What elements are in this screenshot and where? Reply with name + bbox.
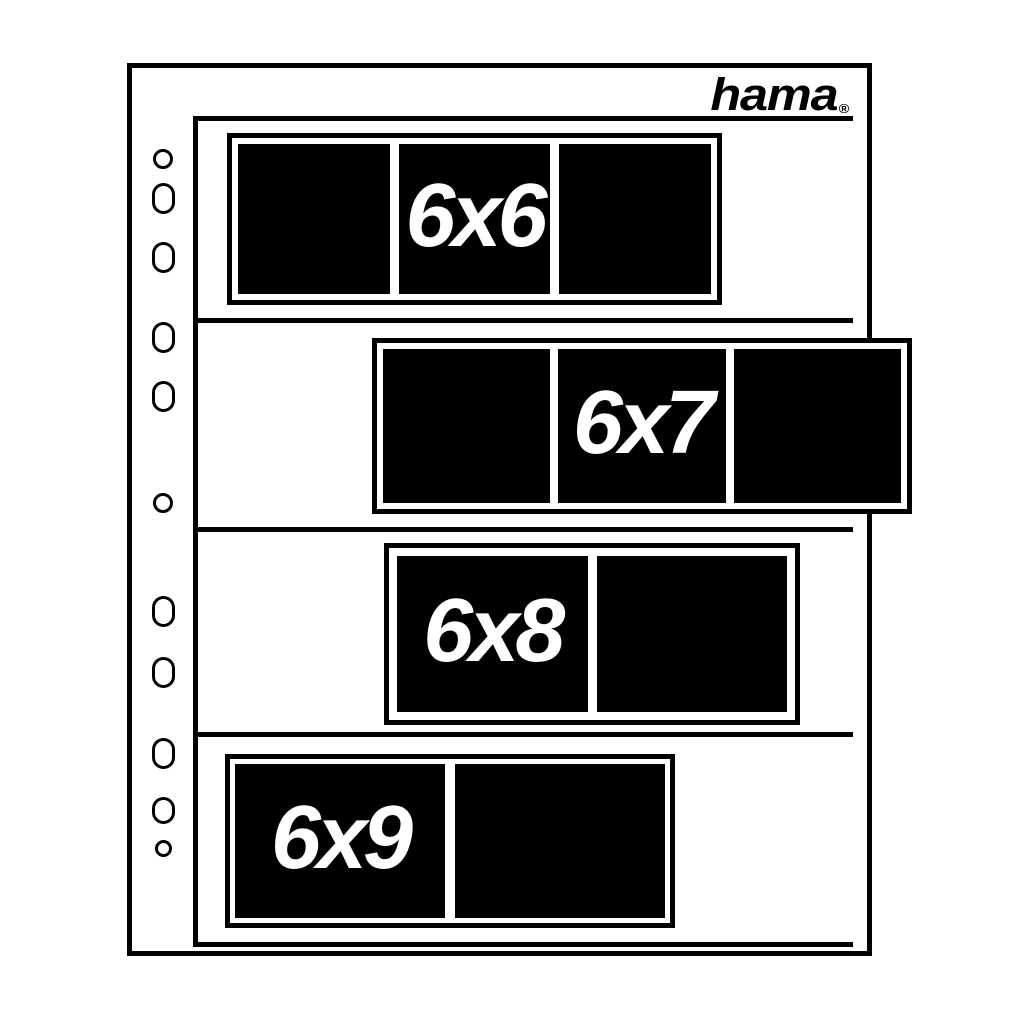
pocket-divider-1 bbox=[193, 318, 853, 323]
hama-logo-text: hama bbox=[710, 69, 837, 120]
film-frame bbox=[734, 349, 901, 503]
registered-trademark-icon: ® bbox=[838, 101, 848, 116]
pocket-divider-3 bbox=[193, 732, 853, 737]
punch-hole-oblong bbox=[152, 183, 175, 214]
film-frame bbox=[383, 349, 550, 503]
format-label-6x9: 6x9 bbox=[271, 793, 409, 883]
film-frame: 6x7 bbox=[558, 349, 725, 503]
film-frame: 6x6 bbox=[399, 144, 551, 294]
punch-hole-oblong bbox=[152, 596, 175, 627]
film-strip-6x6: 6x6 bbox=[227, 133, 722, 305]
film-strip-6x8: 6x8 bbox=[384, 543, 800, 725]
punch-hole-round bbox=[155, 840, 172, 857]
punch-hole-oblong bbox=[152, 738, 175, 769]
film-frame bbox=[597, 556, 788, 712]
film-strip-6x7: 6x7 bbox=[372, 338, 912, 514]
format-label-6x8: 6x8 bbox=[423, 586, 561, 676]
film-frame bbox=[455, 764, 665, 918]
format-label-6x6: 6x6 bbox=[405, 171, 543, 261]
punch-hole-oblong bbox=[152, 797, 175, 824]
punch-hole-oblong bbox=[152, 322, 175, 353]
film-frame: 6x9 bbox=[235, 764, 445, 918]
sleeve-bottom-edge bbox=[193, 942, 853, 947]
film-frame: 6x8 bbox=[397, 556, 588, 712]
punch-hole-oblong bbox=[152, 657, 175, 688]
format-label-6x7: 6x7 bbox=[573, 378, 711, 468]
pocket-divider-2 bbox=[193, 527, 853, 532]
hama-logo: hama® bbox=[710, 72, 847, 117]
punch-hole-round bbox=[153, 493, 173, 513]
punch-hole-round bbox=[153, 149, 173, 169]
film-frame bbox=[238, 144, 390, 294]
negative-sleeve-illustration: hama® 6x6 6x7 6x8 6x9 bbox=[0, 0, 1024, 1024]
punch-hole-oblong bbox=[152, 242, 175, 273]
punch-hole-oblong bbox=[152, 381, 175, 412]
film-frame bbox=[559, 144, 711, 294]
film-strip-6x9: 6x9 bbox=[225, 754, 675, 928]
